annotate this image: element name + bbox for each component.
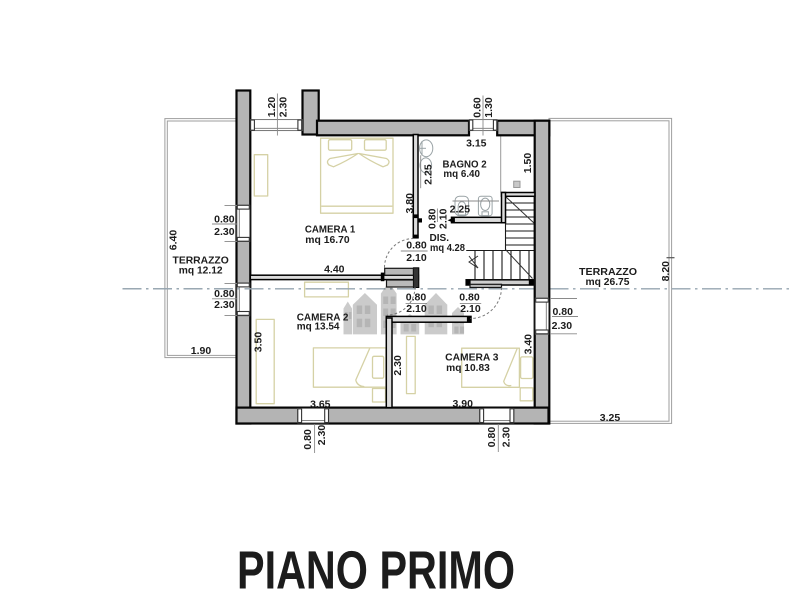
svg-text:mq 4.28: mq 4.28 bbox=[430, 243, 465, 254]
svg-text:2.30: 2.30 bbox=[214, 226, 235, 238]
svg-text:mq 26.75: mq 26.75 bbox=[586, 277, 630, 288]
svg-text:2.10: 2.10 bbox=[460, 303, 481, 315]
svg-text:3.15: 3.15 bbox=[466, 138, 487, 150]
svg-text:mq 12.12: mq 12.12 bbox=[179, 266, 223, 277]
svg-text:0.80: 0.80 bbox=[406, 291, 427, 303]
svg-text:0.80: 0.80 bbox=[406, 239, 427, 251]
svg-text:CAMERA 3: CAMERA 3 bbox=[445, 353, 499, 364]
svg-text:mq 13.54: mq 13.54 bbox=[297, 321, 340, 332]
svg-text:2.30: 2.30 bbox=[501, 427, 513, 448]
svg-text:mq 10.83: mq 10.83 bbox=[446, 363, 490, 374]
svg-text:PIANO PRIMO: PIANO PRIMO bbox=[237, 542, 515, 600]
svg-text:3.80: 3.80 bbox=[404, 193, 416, 214]
svg-text:2.30: 2.30 bbox=[214, 299, 235, 311]
svg-text:3.90: 3.90 bbox=[452, 398, 473, 410]
svg-text:3.65: 3.65 bbox=[310, 399, 331, 411]
svg-text:3.50: 3.50 bbox=[253, 332, 265, 353]
svg-text:2.30: 2.30 bbox=[392, 355, 404, 376]
svg-text:1.20: 1.20 bbox=[266, 97, 278, 118]
svg-text:3.25: 3.25 bbox=[600, 412, 621, 424]
svg-text:2.25: 2.25 bbox=[450, 204, 471, 216]
svg-text:2.30: 2.30 bbox=[316, 425, 328, 446]
svg-text:3.40: 3.40 bbox=[523, 334, 535, 355]
svg-text:2.10: 2.10 bbox=[406, 252, 427, 264]
svg-text:2.25: 2.25 bbox=[423, 164, 435, 185]
svg-text:8.20: 8.20 bbox=[660, 261, 672, 282]
svg-text:mq 6.40: mq 6.40 bbox=[443, 169, 480, 180]
svg-text:0.80: 0.80 bbox=[302, 429, 314, 450]
svg-text:2.30: 2.30 bbox=[552, 320, 573, 332]
svg-text:2.10: 2.10 bbox=[437, 208, 449, 229]
svg-text:0.80: 0.80 bbox=[486, 427, 498, 448]
svg-text:0.80: 0.80 bbox=[214, 288, 235, 300]
svg-text:2.10: 2.10 bbox=[406, 303, 427, 315]
svg-text:0.60: 0.60 bbox=[472, 97, 484, 118]
svg-text:CAMERA 1: CAMERA 1 bbox=[305, 225, 356, 236]
svg-text:4.40: 4.40 bbox=[324, 263, 345, 275]
svg-text:6.40: 6.40 bbox=[168, 230, 180, 251]
svg-text:0.80: 0.80 bbox=[552, 306, 573, 318]
svg-text:mq 16.70: mq 16.70 bbox=[305, 235, 350, 246]
svg-text:1.90: 1.90 bbox=[191, 345, 212, 357]
svg-text:1.50: 1.50 bbox=[522, 153, 534, 174]
svg-text:0.80: 0.80 bbox=[214, 213, 235, 225]
svg-text:1.30: 1.30 bbox=[483, 97, 495, 118]
svg-text:2.30: 2.30 bbox=[277, 97, 289, 118]
svg-text:0.80: 0.80 bbox=[459, 291, 480, 303]
